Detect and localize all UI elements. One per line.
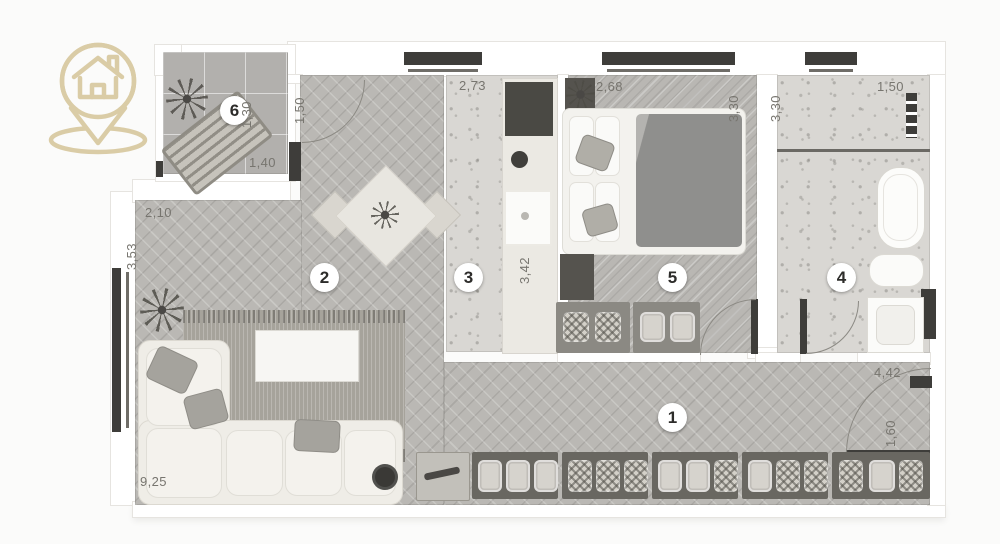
storage-basket bbox=[804, 460, 828, 492]
window-living-icon bbox=[404, 52, 482, 65]
storage-basket bbox=[839, 460, 863, 492]
window-bedroom-icon bbox=[602, 52, 735, 65]
window-bedroom-pane bbox=[607, 69, 730, 72]
dim-bath-top: 1,50 bbox=[877, 80, 904, 93]
balcony-plant-icon bbox=[166, 78, 208, 120]
window-bath-icon bbox=[805, 52, 857, 65]
kitchen-basin-drain bbox=[521, 212, 529, 220]
storage-box bbox=[534, 460, 558, 492]
room-number: 5 bbox=[668, 268, 677, 288]
sofa-seat-1 bbox=[226, 430, 283, 496]
room-badge-living: 2 bbox=[310, 263, 339, 292]
dim-balcony-bottom: 1,40 bbox=[249, 156, 276, 169]
living-plant-icon bbox=[140, 288, 184, 332]
window-living-pane bbox=[408, 69, 478, 72]
balcony-corner-stub bbox=[156, 161, 163, 177]
dim-bath-left: 3,30 bbox=[769, 95, 782, 122]
dim-kitchen-top: 2,73 bbox=[459, 79, 486, 92]
window-bath-pane bbox=[809, 69, 853, 72]
storage-basket bbox=[899, 460, 923, 492]
floor-plan-page: { "logo": {"icon": "house-location-pin",… bbox=[0, 0, 1000, 544]
bedroom-basket-1 bbox=[563, 312, 589, 342]
dim-bedroom-top: 2,68 bbox=[596, 80, 623, 93]
dim-hall-entry: 4,42 bbox=[874, 366, 901, 379]
cooktop bbox=[505, 82, 553, 136]
room-number: 1 bbox=[668, 408, 677, 428]
kitchen-sink-tap-icon bbox=[511, 151, 528, 168]
washing-machine-door bbox=[876, 305, 915, 345]
throw-pillow-3 bbox=[293, 419, 341, 453]
bedroom-plant-icon bbox=[566, 80, 595, 109]
room-number: 3 bbox=[464, 268, 473, 288]
storage-box bbox=[748, 460, 772, 492]
storage-basket bbox=[568, 460, 592, 492]
bed-duvet bbox=[636, 114, 742, 247]
storage-basket bbox=[596, 460, 620, 492]
dim-living-top: 2,10 bbox=[145, 206, 172, 219]
floor-pouf bbox=[372, 464, 398, 490]
dim-living-left: 3,53 bbox=[125, 243, 138, 270]
storage-box bbox=[506, 460, 530, 492]
bath-sink bbox=[869, 254, 924, 287]
dim-kitchen-right: 3,42 bbox=[518, 257, 531, 284]
storage-box bbox=[478, 460, 502, 492]
storage-box bbox=[686, 460, 710, 492]
room-badge-hall: 1 bbox=[658, 403, 687, 432]
room-badge-bedroom: 5 bbox=[658, 263, 687, 292]
bedroom-nightstand-bottom bbox=[560, 254, 594, 300]
balcony-door-jamb bbox=[289, 142, 301, 181]
storage-basket bbox=[624, 460, 648, 492]
storage-box bbox=[658, 460, 682, 492]
room-number: 6 bbox=[230, 101, 239, 121]
dim-balcony-door: 1,50 bbox=[293, 97, 306, 124]
room-badge-kitchen: 3 bbox=[454, 263, 483, 292]
coffee-table bbox=[255, 330, 359, 382]
shower-partition bbox=[777, 149, 930, 152]
dim-balcony-right: 1,30 bbox=[240, 101, 253, 128]
towel-radiator-icon bbox=[906, 93, 917, 138]
window-left-icon bbox=[112, 268, 121, 432]
dim-living-bottom: 9,25 bbox=[140, 475, 167, 488]
dim-entry-door: 1,60 bbox=[884, 420, 897, 447]
room-number: 2 bbox=[320, 268, 329, 288]
dining-table-plant-icon bbox=[371, 201, 399, 229]
storage-basket bbox=[776, 460, 800, 492]
bedroom-box-2 bbox=[670, 312, 695, 342]
bathtub-inner bbox=[883, 174, 918, 241]
storage-box bbox=[869, 460, 895, 492]
room-badge-bath: 4 bbox=[827, 263, 856, 292]
room-number: 4 bbox=[837, 268, 846, 288]
window-left-pane bbox=[126, 272, 129, 428]
bedroom-basket-2 bbox=[595, 312, 621, 342]
storage-basket bbox=[714, 460, 738, 492]
house-pin-logo-icon bbox=[30, 26, 170, 156]
bedroom-box-1 bbox=[640, 312, 665, 342]
dim-bedroom-right: 3,30 bbox=[727, 95, 740, 122]
